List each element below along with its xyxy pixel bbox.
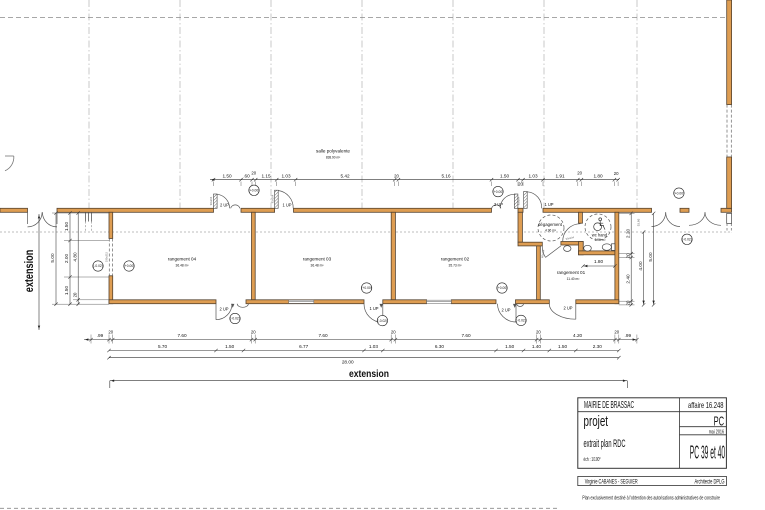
- svg-text:(+0.00): (+0.00): [493, 190, 504, 194]
- svg-text:dégagement: dégagement: [538, 222, 563, 227]
- svg-text:2.20: 2.20: [625, 229, 630, 239]
- svg-text:28.00: 28.00: [342, 359, 354, 364]
- svg-text:.99: .99: [97, 333, 104, 338]
- svg-text:1.03: 1.03: [528, 173, 538, 178]
- svg-text:extension: extension: [22, 250, 36, 293]
- svg-text:(-0.02): (-0.02): [378, 319, 388, 323]
- svg-text:36.48 m²: 36.48 m²: [310, 264, 324, 268]
- svg-text:.60: .60: [243, 173, 250, 178]
- svg-text:1 UP: 1 UP: [369, 306, 378, 311]
- svg-text:(-0.02): (-0.02): [516, 319, 526, 323]
- svg-text:rangement 02: rangement 02: [441, 257, 470, 262]
- svg-text:4.80: 4.80: [72, 252, 77, 262]
- svg-text:4.20: 4.20: [573, 333, 583, 338]
- svg-text:salle polyvalente: salle polyvalente: [316, 149, 350, 154]
- svg-text:2 UP: 2 UP: [563, 306, 572, 311]
- svg-text:20: 20: [108, 330, 113, 335]
- svg-text:20: 20: [518, 182, 523, 187]
- svg-text:6.77: 6.77: [299, 344, 309, 349]
- svg-text:(+0.00): (+0.00): [674, 191, 685, 195]
- svg-text:1.50: 1.50: [225, 344, 235, 349]
- svg-text:mai 2016: mai 2016: [709, 429, 724, 435]
- svg-text:Architecte DPLG: Architecte DPLG: [695, 478, 725, 485]
- svg-text:20: 20: [391, 330, 396, 335]
- svg-text:1.50: 1.50: [505, 344, 515, 349]
- svg-text:7.60: 7.60: [177, 333, 187, 338]
- svg-text:extension: extension: [349, 368, 389, 380]
- svg-text:(+0.00): (+0.00): [124, 264, 135, 268]
- svg-text:(+0.00): (+0.00): [249, 189, 260, 193]
- svg-text:2 UP: 2 UP: [494, 202, 503, 207]
- svg-text:5.16: 5.16: [441, 173, 451, 178]
- svg-text:5.00: 5.00: [50, 253, 55, 263]
- svg-text:7.60: 7.60: [461, 333, 471, 338]
- svg-text:1.50: 1.50: [500, 173, 510, 178]
- svg-text:7.60: 7.60: [318, 333, 328, 338]
- svg-text:1.80: 1.80: [594, 259, 604, 264]
- svg-text:2 UP: 2 UP: [220, 203, 229, 208]
- svg-text:20: 20: [536, 330, 541, 335]
- svg-text:35.73 m²: 35.73 m²: [448, 264, 462, 268]
- svg-text:(+0.00): (+0.00): [497, 286, 508, 290]
- svg-text:5.42: 5.42: [340, 173, 350, 178]
- svg-text:20: 20: [394, 173, 399, 178]
- svg-text:20: 20: [72, 292, 77, 297]
- svg-text:1.15: 1.15: [261, 173, 271, 178]
- svg-text:1.50: 1.50: [222, 173, 232, 178]
- svg-text:Virginie CABANES - SEGUIER: Virginie CABANES - SEGUIER: [585, 478, 638, 485]
- svg-text:Plan exclusivement destiné à l: Plan exclusivement destiné à l'obtention…: [582, 495, 720, 501]
- svg-text:5.00: 5.00: [648, 252, 653, 262]
- svg-text:projet: projet: [584, 413, 609, 430]
- svg-text:838.90 m²: 838.90 m²: [326, 156, 340, 160]
- svg-text:PC: PC: [714, 413, 725, 428]
- svg-text:1.40: 1.40: [532, 344, 542, 349]
- svg-text:(-0.02): (-0.02): [93, 264, 103, 268]
- svg-text:11.40 m²: 11.40 m²: [567, 277, 581, 281]
- svg-text:53,86: 53,86: [637, 218, 641, 226]
- svg-text:20: 20: [251, 170, 256, 175]
- svg-text:20: 20: [625, 253, 630, 258]
- svg-text:.99: .99: [625, 333, 632, 338]
- svg-text:190x215: 190x215: [105, 251, 109, 262]
- svg-text:2.30: 2.30: [593, 344, 603, 349]
- svg-text:(-0.02): (-0.02): [230, 317, 240, 321]
- svg-text:4.00: 4.00: [638, 261, 643, 271]
- svg-text:affaire 16.248: affaire 16.248: [688, 400, 724, 410]
- svg-text:1.50: 1.50: [64, 286, 69, 296]
- svg-text:1.03: 1.03: [369, 344, 379, 349]
- svg-text:4.96 m²: 4.96 m²: [545, 229, 556, 233]
- svg-text:1 UP: 1 UP: [544, 202, 553, 207]
- svg-text:20: 20: [625, 300, 630, 305]
- svg-text:1 UP: 1 UP: [282, 203, 291, 208]
- svg-text:1.50: 1.50: [558, 344, 568, 349]
- svg-text:6.30: 6.30: [435, 344, 445, 349]
- svg-text:20: 20: [614, 171, 619, 176]
- svg-text:2.40: 2.40: [625, 274, 630, 284]
- svg-text:2.00: 2.00: [64, 254, 69, 264]
- svg-text:2 UP: 2 UP: [219, 307, 228, 312]
- svg-text:93x204: 93x204: [270, 194, 274, 203]
- svg-text:MAIRIE DE BRASSAC: MAIRIE DE BRASSAC: [584, 400, 634, 411]
- svg-text:rangement 03: rangement 03: [303, 257, 332, 262]
- svg-text:1.80: 1.80: [593, 173, 603, 178]
- svg-text:20: 20: [251, 330, 256, 335]
- svg-text:rangement 04: rangement 04: [168, 257, 197, 262]
- svg-text:wc hand.: wc hand.: [592, 233, 608, 238]
- svg-text:1.50: 1.50: [64, 222, 69, 232]
- svg-text:(-0.02): (-0.02): [682, 238, 692, 242]
- svg-text:36.48 m²: 36.48 m²: [175, 264, 189, 268]
- svg-text:93x204: 93x204: [209, 196, 213, 205]
- svg-text:20: 20: [614, 330, 619, 335]
- svg-text:2.96 m²: 2.96 m²: [595, 238, 606, 242]
- svg-text:extrait plan RDC: extrait plan RDC: [584, 438, 626, 450]
- svg-text:rangement 01: rangement 01: [557, 270, 586, 275]
- svg-text:5.70: 5.70: [158, 344, 168, 349]
- svg-text:éch : 1/100°: éch : 1/100°: [584, 457, 601, 463]
- svg-text:20: 20: [577, 170, 582, 175]
- svg-text:(+0.00): (+0.00): [361, 286, 372, 290]
- svg-text:1.91: 1.91: [555, 173, 565, 178]
- svg-text:93x204: 93x204: [517, 196, 521, 205]
- svg-text:1.03: 1.03: [281, 173, 291, 178]
- svg-text:PC 39 et 40: PC 39 et 40: [690, 442, 725, 462]
- svg-text:2 UP: 2 UP: [501, 308, 510, 313]
